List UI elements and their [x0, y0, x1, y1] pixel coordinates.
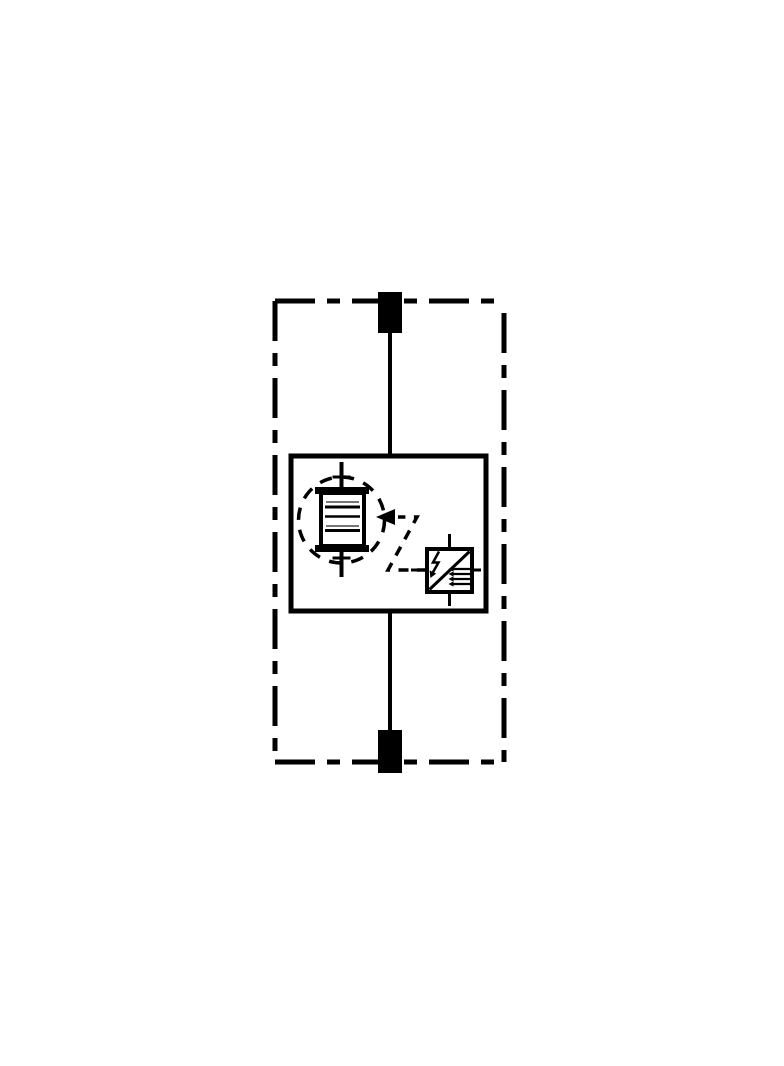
spd-circuit-diagram [0, 0, 784, 1066]
page [0, 0, 784, 1066]
spark-gap-body [321, 493, 364, 546]
terminal-top [378, 292, 402, 333]
terminal-bottom [378, 730, 402, 773]
spark-gap-bottom-cap [315, 545, 369, 552]
